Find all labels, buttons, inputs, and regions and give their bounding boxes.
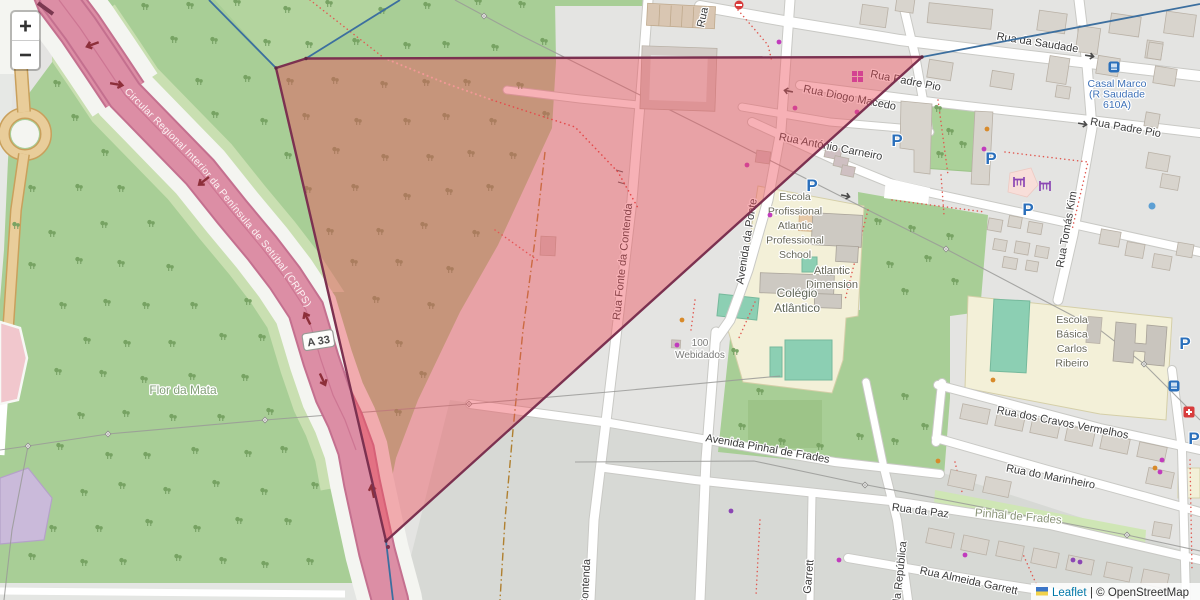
svg-text:Colégio: Colégio (777, 286, 818, 300)
svg-text:P: P (1188, 429, 1199, 448)
svg-text:P: P (1022, 200, 1033, 219)
svg-text:Webidados: Webidados (675, 350, 725, 361)
svg-text:P: P (891, 131, 902, 150)
svg-text:Flor da Mata: Flor da Mata (149, 383, 217, 397)
svg-text:Atlântico: Atlântico (774, 301, 820, 315)
svg-text:| © OpenStreetMap: | © OpenStreetMap (1090, 587, 1189, 599)
svg-text:610A): 610A) (1103, 99, 1131, 111)
svg-text:School: School (779, 249, 811, 261)
svg-text:Carlos: Carlos (1057, 343, 1087, 355)
svg-text:Profissional: Profissional (768, 206, 822, 218)
svg-text:Leaflet: Leaflet (1052, 587, 1087, 599)
svg-text:P: P (806, 176, 817, 195)
svg-text:Atlantic: Atlantic (814, 265, 851, 277)
svg-text:100: 100 (692, 338, 709, 349)
svg-text:Ribeiro: Ribeiro (1055, 358, 1088, 370)
svg-text:P: P (985, 149, 996, 168)
svg-text:P: P (1179, 334, 1190, 353)
svg-text:Contenda: Contenda (579, 558, 594, 600)
svg-text:Escola: Escola (1056, 314, 1088, 326)
svg-text:Atlantic: Atlantic (778, 220, 812, 232)
svg-text:Básica: Básica (1056, 329, 1088, 341)
svg-text:Professional: Professional (766, 235, 824, 247)
